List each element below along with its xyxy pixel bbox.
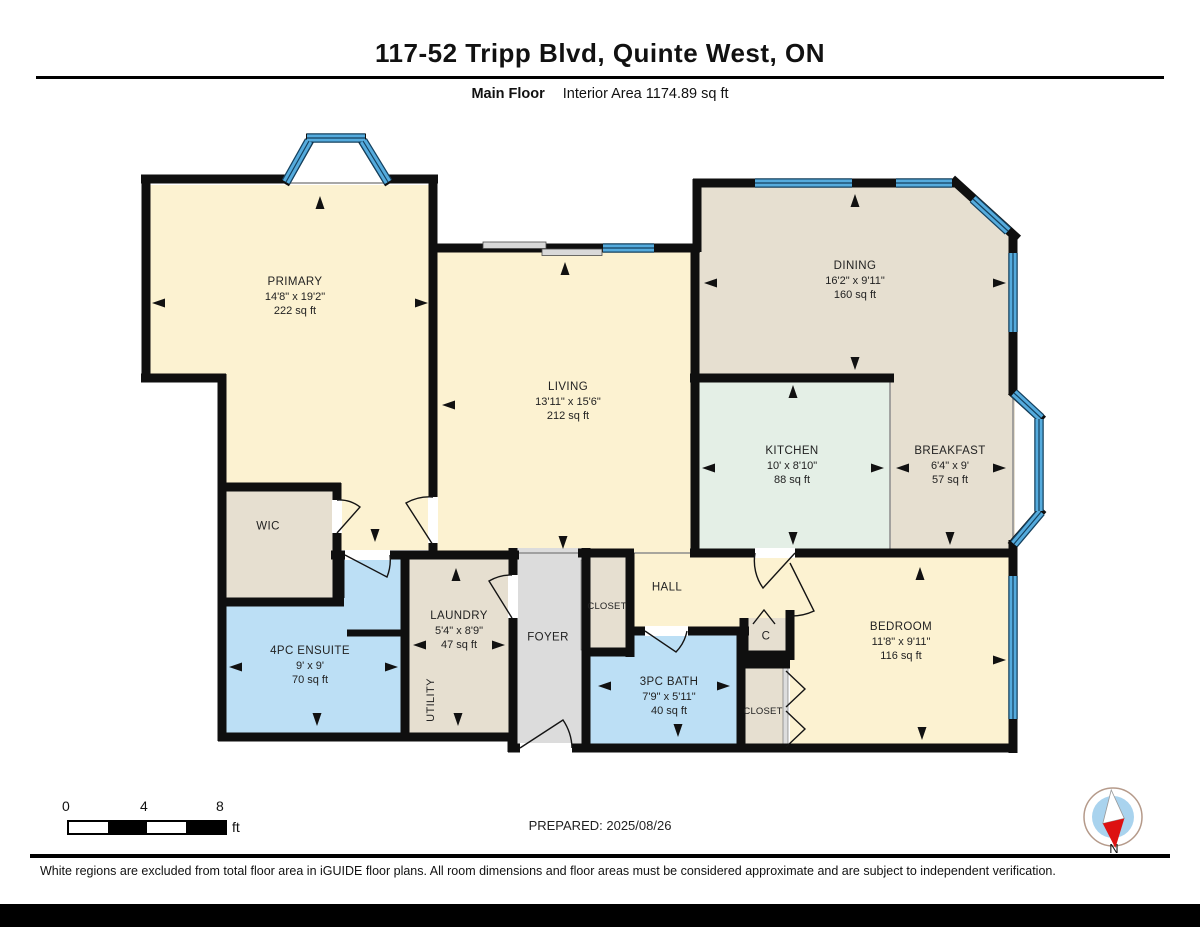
floor-plan-page: 117-52 Tripp Blvd, Quinte West, ON Main …: [0, 0, 1200, 927]
floor-plan-svg: [0, 0, 1200, 927]
disclaimer-text: White regions are excluded from total fl…: [40, 864, 1170, 878]
scale-tick-8: 8: [216, 798, 224, 814]
room-label-ensuite: 4PC ENSUITE 9' x 9' 70 sq ft: [270, 644, 350, 688]
scale-tick-4: 4: [140, 798, 148, 814]
room-label-dining: DINING 16'2" x 9'11" 160 sq ft: [825, 259, 885, 303]
room-label-breakfast: BREAKFAST 6'4" x 9' 57 sq ft: [914, 444, 985, 488]
room-label-closet-bedroom: CLOSET: [743, 706, 782, 718]
scale-tick-0: 0: [62, 798, 70, 814]
room-label-foyer: FOYER: [527, 631, 569, 646]
room-label-closet-foyer: CLOSET: [587, 601, 626, 613]
bottom-border-bar: [0, 904, 1200, 927]
room-label-living: LIVING 13'11" x 15'6" 212 sq ft: [535, 380, 601, 424]
prepared-date: PREPARED: 2025/08/26: [0, 818, 1200, 833]
room-label-utility: UTILITY: [424, 678, 438, 722]
room-label-c-closet: C: [762, 630, 771, 645]
room-label-bath: 3PC BATH 7'9" x 5'11" 40 sq ft: [640, 675, 699, 719]
room-label-kitchen: KITCHEN 10' x 8'10" 88 sq ft: [765, 444, 818, 488]
room-label-laundry: LAUNDRY 5'4" x 8'9" 47 sq ft: [430, 609, 488, 653]
room-label-wic: WIC: [256, 520, 280, 535]
footer-divider: [30, 854, 1170, 858]
room-label-primary: PRIMARY 14'8" x 19'2" 222 sq ft: [265, 275, 325, 319]
room-label-bedroom: BEDROOM 11'8" x 9'11" 116 sq ft: [870, 620, 932, 664]
room-label-hall: HALL: [652, 581, 682, 596]
